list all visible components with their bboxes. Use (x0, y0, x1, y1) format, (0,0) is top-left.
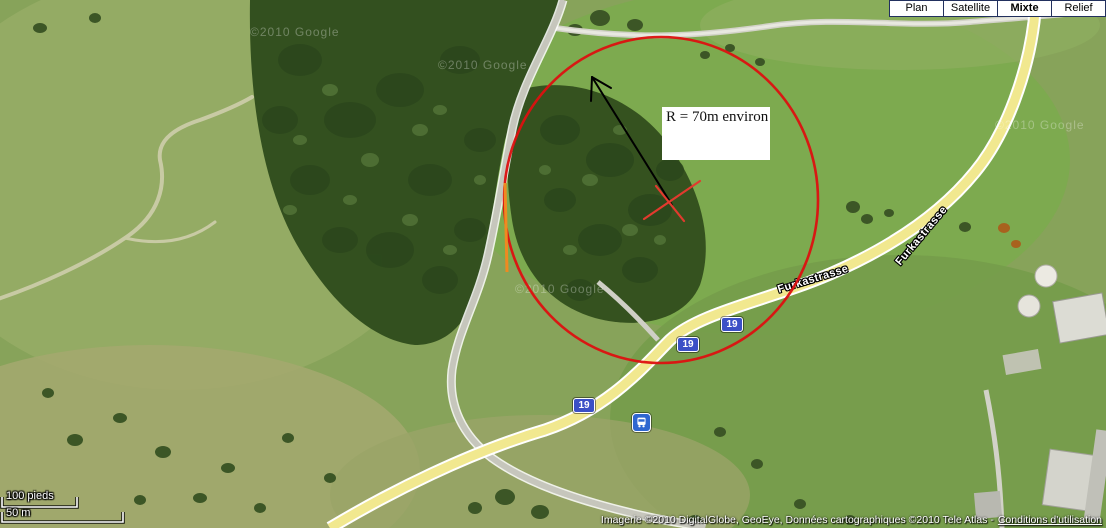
route-badge-19: 19 (721, 317, 743, 332)
attribution: Imagerie ©2010 DigitalGlobe, GeoEye, Don… (601, 514, 1102, 526)
bus-stop-marker[interactable] (632, 413, 651, 432)
route-badge-19: 19 (677, 337, 699, 352)
route-badge-19: 19 (573, 398, 595, 413)
map-type-button-plan[interactable]: Plan (889, 0, 944, 17)
imagery-watermark: ©2010 Google (438, 58, 528, 72)
terms-link[interactable]: Conditions d'utilisation (998, 514, 1102, 526)
attribution-text: Imagerie ©2010 DigitalGlobe, GeoEye, Don… (601, 514, 994, 526)
map-type-controls: Plan Satellite Mixte Relief (890, 0, 1106, 17)
radius-label-text: R = 70m environ (666, 109, 768, 125)
map-type-button-mixte[interactable]: Mixte (997, 0, 1052, 17)
imagery-watermark: ©2010 Google (515, 282, 605, 296)
imagery-watermark: ©2010 Google (250, 25, 340, 39)
map-type-button-relief[interactable]: Relief (1051, 0, 1106, 17)
map-canvas[interactable]: ©2010 Google ©2010 Google ©2010 Google ©… (0, 0, 1106, 528)
bus-icon (635, 416, 648, 429)
map-type-button-satellite[interactable]: Satellite (943, 0, 998, 17)
radius-label-box: R = 70m environ (662, 107, 770, 160)
scale-imperial: 100 pieds (6, 490, 54, 502)
imagery-watermark: ©2010 Google (995, 118, 1085, 132)
scale-metric: 50 m (6, 507, 30, 519)
satellite-imagery (0, 0, 1106, 528)
